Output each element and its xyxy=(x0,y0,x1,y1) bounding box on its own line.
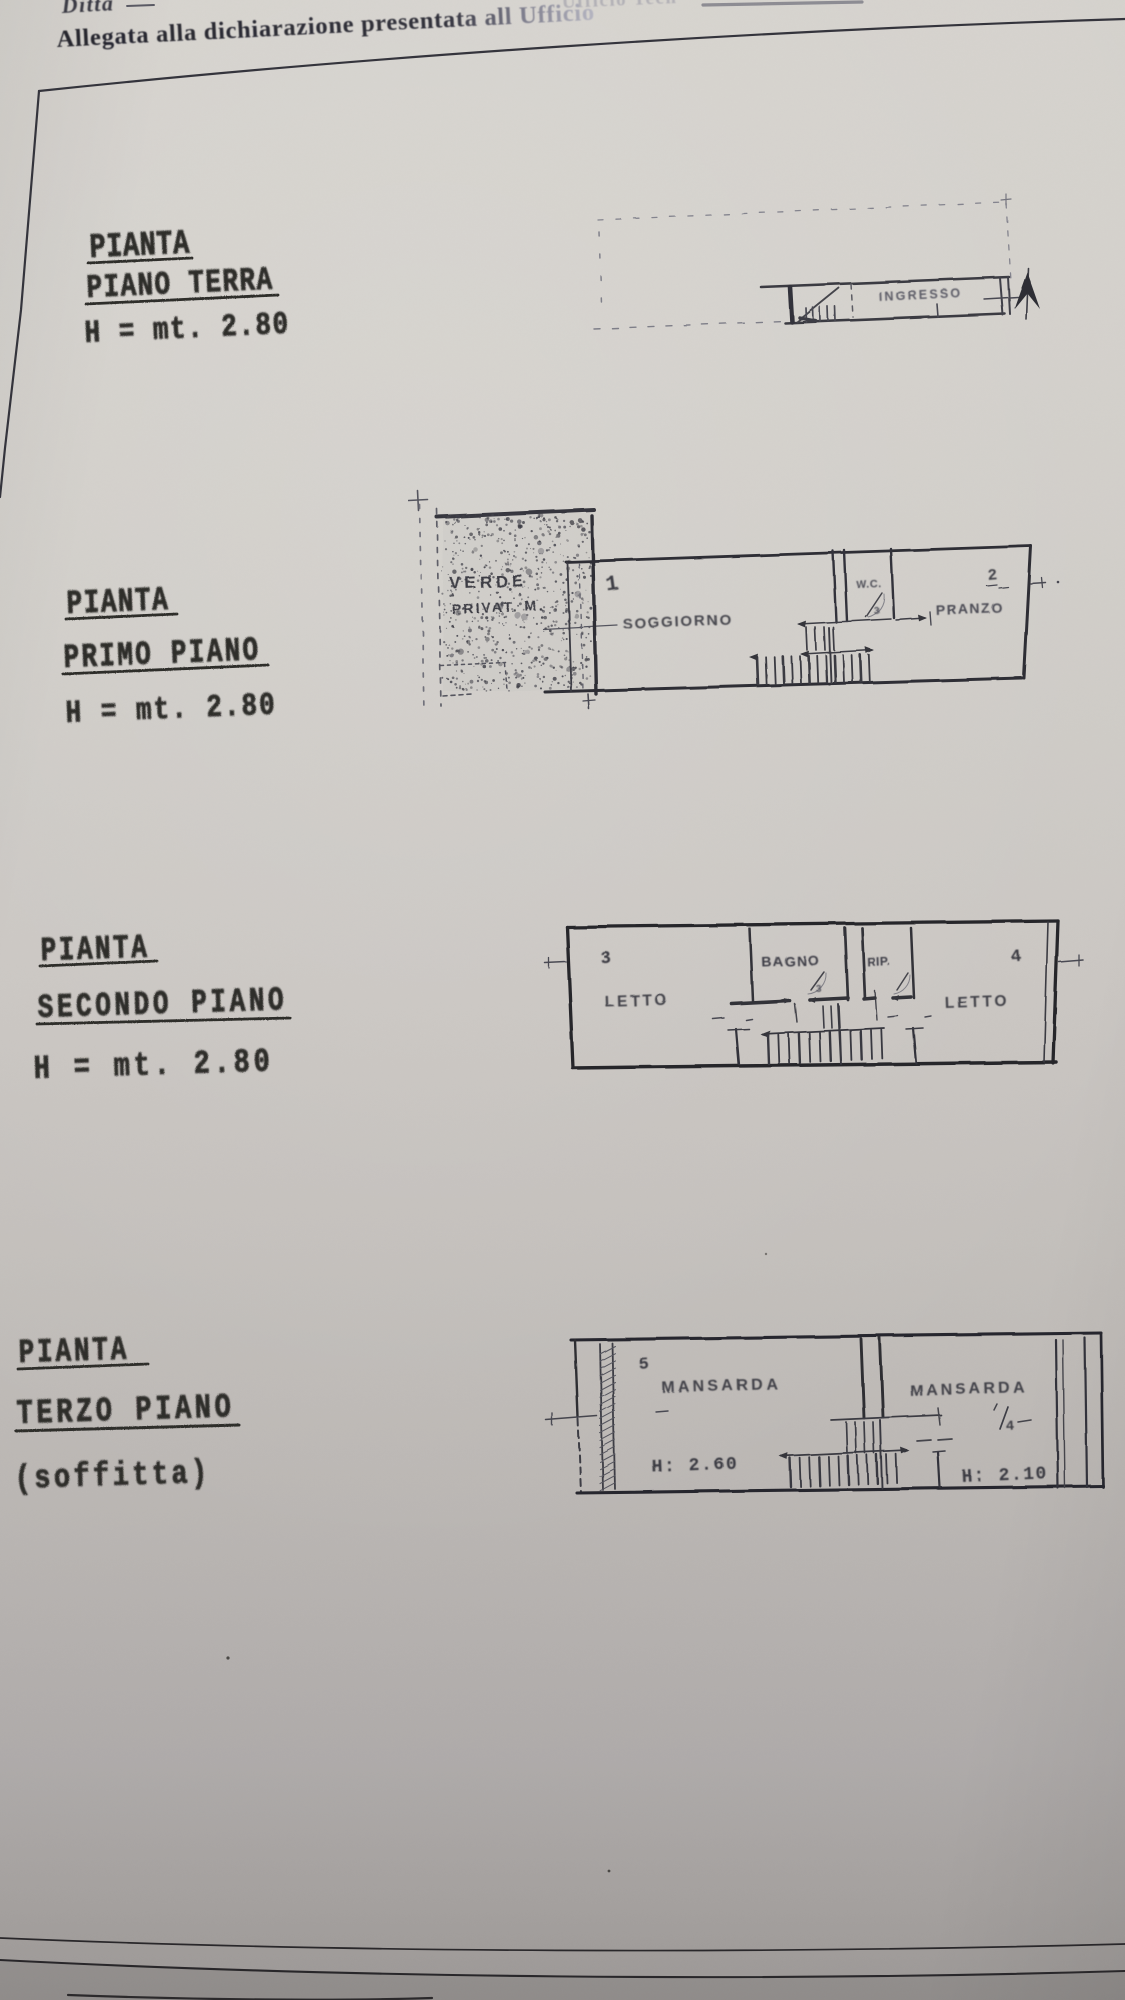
svg-text:H: 2.10: H: 2.10 xyxy=(961,1464,1048,1488)
svg-text:5: 5 xyxy=(638,1355,650,1375)
svg-text:3: 3 xyxy=(816,984,822,995)
svg-text:W.C.: W.C. xyxy=(856,578,882,591)
svg-text:4: 4 xyxy=(1010,947,1022,967)
svg-text:H = mt. 2.80: H = mt. 2.80 xyxy=(33,1044,274,1089)
svg-text:(soffitta): (soffitta) xyxy=(14,1456,211,1499)
svg-text:H: 2.60: H: 2.60 xyxy=(651,1454,738,1478)
svg-text:2: 2 xyxy=(987,566,998,585)
svg-text:LETTO: LETTO xyxy=(605,992,670,1011)
svg-text:BAGNO: BAGNO xyxy=(762,952,821,970)
svg-text:VERDE: VERDE xyxy=(449,572,527,593)
svg-text:PRANZO: PRANZO xyxy=(936,600,1005,618)
svg-text:Ditta: Ditta xyxy=(60,0,115,18)
svg-text:3: 3 xyxy=(600,949,612,970)
svg-text:RIP.: RIP. xyxy=(867,954,891,969)
svg-text:3: 3 xyxy=(874,606,880,617)
svg-text:4: 4 xyxy=(1005,1419,1014,1435)
svg-text:LETTO: LETTO xyxy=(945,993,1010,1012)
